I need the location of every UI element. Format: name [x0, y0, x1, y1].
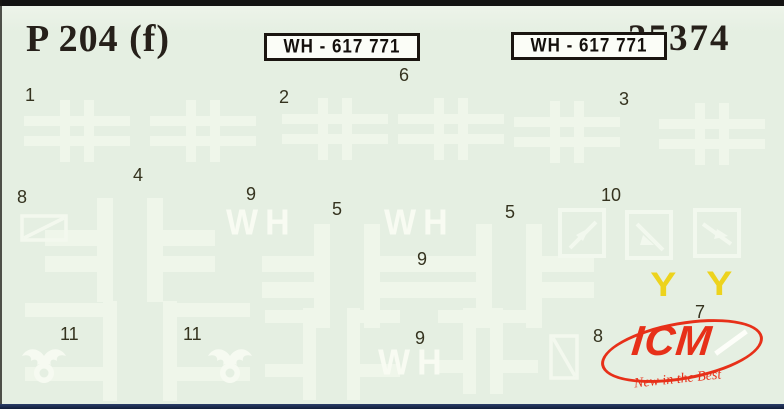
decal-sheet: P 204 (f) 35374 WH - 617 771 WH - 617 77… [0, 0, 784, 409]
license-plate-decal: WH - 617 771 [511, 32, 667, 60]
crossed-rectangle-decal [20, 214, 68, 242]
sheet-title: P 204 (f) [26, 20, 170, 58]
sheet-blue-strip [0, 404, 784, 409]
balkenkreuz-cross-decal [514, 101, 620, 163]
wh-marking-decal: WH [226, 205, 297, 241]
decal-number-label: 4 [133, 166, 143, 184]
icm-logo-text: ICM [630, 320, 714, 362]
plate-number-text: WH - 617 771 [531, 35, 648, 57]
crossed-rectangle-decal [549, 334, 579, 380]
balkenkreuz-cross-decal [398, 98, 504, 160]
decal-number-label: 1 [25, 86, 35, 104]
decal-number-label: 5 [505, 203, 515, 221]
decal-number-label: 9 [246, 185, 256, 203]
aerial-recognition-y-decal: Y [706, 267, 732, 301]
license-plate-decal: WH - 617 771 [264, 33, 420, 61]
decal-number-label: 2 [279, 88, 289, 106]
balkenkreuz-cross-decal [438, 308, 538, 394]
decal-number-label: 10 [601, 186, 621, 204]
balkenkreuz-cross-decal [659, 103, 765, 165]
decal-number-label: 11 [183, 325, 202, 343]
decal-number-label: 9 [417, 250, 427, 268]
balkenkreuz-cross-decal [150, 100, 256, 162]
balkenkreuz-cross-decal [282, 98, 388, 160]
balkenkreuz-cross-decal [24, 100, 130, 162]
balkenkreuz-cross-decal [45, 198, 215, 302]
tactical-sign-decal [558, 208, 606, 258]
scan-edge-top [0, 0, 784, 6]
decal-number-label: 11 [60, 325, 79, 343]
tactical-sign-decal [693, 208, 741, 258]
wh-marking-decal: WH [378, 345, 449, 381]
decal-number-label: 5 [332, 200, 342, 218]
decal-number-label: 8 [17, 188, 27, 206]
icm-logo: ICM New in the Best [596, 316, 772, 396]
aerial-recognition-y-decal: Y [650, 268, 676, 302]
decal-number-label: 9 [415, 329, 425, 347]
scan-edge-left [0, 0, 2, 409]
decal-number-label: 6 [399, 66, 409, 84]
tactical-sign-decal [625, 210, 673, 260]
wh-marking-decal: WH [384, 205, 455, 241]
eagle-emblem-decal [206, 344, 254, 388]
plate-number-text: WH - 617 771 [284, 36, 401, 58]
decal-number-label: 3 [619, 90, 629, 108]
eagle-emblem-decal [20, 344, 68, 388]
